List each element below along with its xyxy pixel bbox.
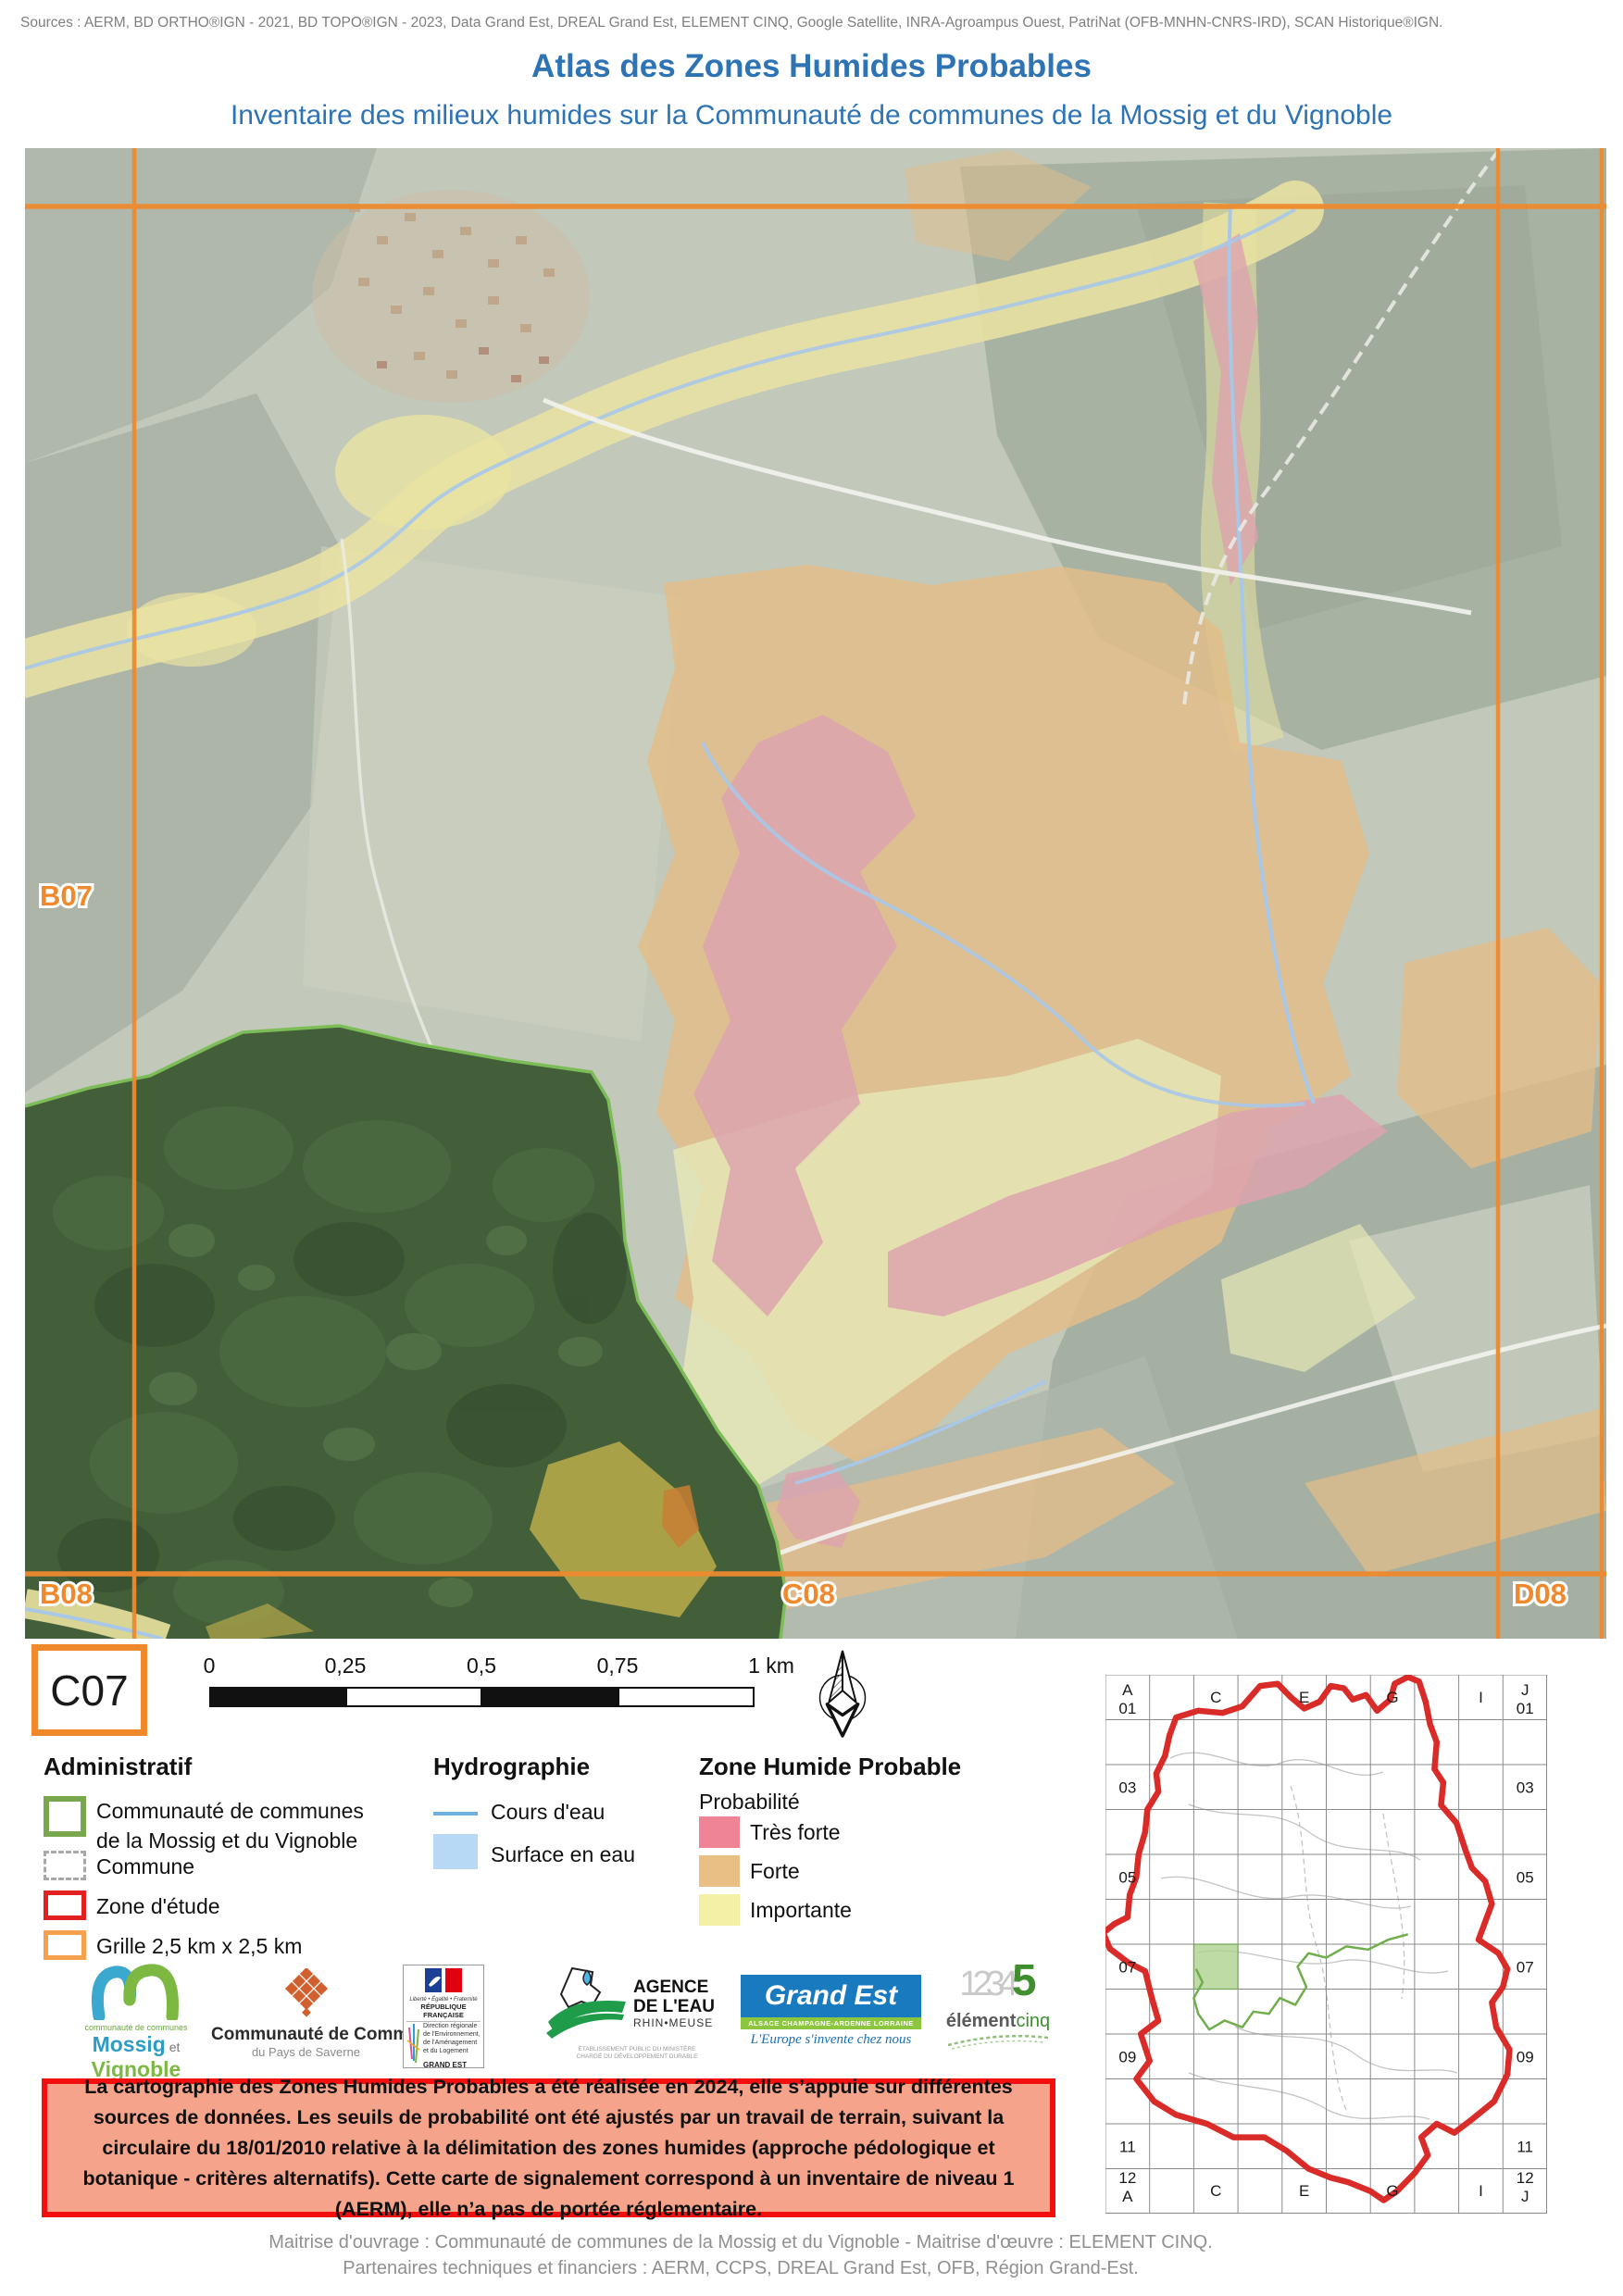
scale-tick-1km: 1 km <box>748 1653 794 1678</box>
north-arrow-icon <box>807 1648 878 1739</box>
satellite-map-canvas: B07 B08 C08 D08 <box>25 148 1606 1639</box>
ov-col-g-top: G <box>1386 1689 1398 1706</box>
ov-row-09-left: 09 <box>1118 2048 1136 2065</box>
ov-col-c-top: C <box>1210 1689 1221 1706</box>
logo-agence-eau: AGENCE DE L'EAU RHIN•MEUSE ÉTABLISSEMENT… <box>544 1965 730 2061</box>
element5-name2: cinq <box>1016 2011 1050 2031</box>
saverne-diamonds-icon <box>282 1968 331 2020</box>
france-flag-icon <box>425 1968 462 1992</box>
legend-hydro-title: Hydrographie <box>433 1753 590 1781</box>
element5-five: 5 <box>1012 1956 1037 2005</box>
legend-cc-label-1: Communauté de communes <box>96 1799 364 1824</box>
dreal-lower: Direction régionale de l'Environnement, … <box>406 2021 481 2069</box>
overview-current-cell <box>1193 1944 1238 1990</box>
legend-cc-swatch <box>44 1796 86 1837</box>
grid-label-d08: D08 <box>1514 1578 1567 1610</box>
ov-col-e-bottom: E <box>1299 2182 1309 2200</box>
ov-row-05-right: 05 <box>1517 1868 1534 1886</box>
notice-text: La cartographie des Zones Humides Probab… <box>68 2072 1030 2225</box>
overview-canvas: A 01 J 01 12 A 12 J C E G I C E G I 03 0… <box>1105 1675 1547 2214</box>
logo-dreal: Liberté • Égalité • Fraternité RÉPUBLIQU… <box>403 1965 484 2068</box>
saverne-line1: Communauté de Communes <box>211 2025 401 2045</box>
ov-corner-br-2: J <box>1521 2188 1529 2205</box>
current-cell-label: C07 <box>50 1666 128 1716</box>
ov-row-03-left: 03 <box>1118 1778 1136 1796</box>
legend-tres-forte-swatch <box>699 1816 740 1848</box>
footer-line2: Partenaires techniques et financiers : A… <box>69 2255 1412 2281</box>
scale-seg-3 <box>481 1687 618 1707</box>
dreal-bars-icon <box>406 2022 421 2065</box>
ov-corner-bl-2: A <box>1122 2188 1133 2205</box>
dreal-republique: RÉPUBLIQUE FRANÇAISE <box>404 2003 483 2019</box>
agence-l1: AGENCE <box>633 1978 715 1997</box>
agence-eau-icon <box>544 1965 630 2042</box>
logo-grand-est: Grand Est ALSACE CHAMPAGNE-ARDENNE LORRA… <box>741 1975 921 2048</box>
ov-corner-tl-1: A <box>1122 1681 1133 1699</box>
grandest-strip: ALSACE CHAMPAGNE-ARDENNE LORRAINE <box>748 2019 914 2028</box>
grid-label-b08: B08 <box>40 1578 93 1610</box>
ov-col-i-top: I <box>1479 1689 1483 1706</box>
legend-grille-label: Grille 2,5 km x 2,5 km <box>96 1934 302 1959</box>
legend-forte-label: Forte <box>750 1859 800 1884</box>
ov-row-05-left: 05 <box>1118 1868 1136 1886</box>
logo-saverne: Communauté de Communes du Pays de Savern… <box>211 1968 401 2059</box>
agence-sub1: ÉTABLISSEMENT PUBLIC DU MINISTÈRE <box>579 2046 696 2053</box>
scale-seg-1 <box>209 1687 346 1707</box>
page-title: Atlas des Zones Humides Probables <box>0 48 1623 85</box>
legend-probabilite-label: Probabilité <box>699 1790 800 1815</box>
main-map: B07 B08 C08 D08 <box>25 148 1606 1639</box>
legend-zone-etude-label: Zone d'étude <box>96 1894 220 1919</box>
scale-tick-05: 0,5 <box>467 1653 496 1678</box>
footer: Maitrise d'ouvrage : Communauté de commu… <box>69 2229 1412 2281</box>
ov-corner-tr-2: 01 <box>1517 1700 1534 1717</box>
legend-surface-swatch <box>433 1834 478 1869</box>
legend-zhp-title: Zone Humide Probable <box>699 1753 961 1781</box>
legend-grille-swatch <box>44 1930 86 1960</box>
legend-importante-swatch <box>699 1894 740 1926</box>
legend-surface-label: Surface en eau <box>491 1842 635 1867</box>
scale-tick-025: 0,25 <box>325 1653 367 1678</box>
mossig-name1: Mossig <box>93 2032 166 2056</box>
current-cell-box: C07 <box>31 1644 147 1736</box>
element5-digits: 1234 <box>959 1965 1012 2003</box>
ov-row-09-right: 09 <box>1517 2048 1534 2065</box>
ov-col-i-bottom: I <box>1479 2182 1483 2200</box>
overview-map: A 01 J 01 12 A 12 J C E G I C E G I 03 0… <box>1105 1675 1547 2218</box>
village-texture <box>312 190 590 403</box>
legend-admin-title: Administratif <box>44 1753 192 1781</box>
notice-box: La cartographie des Zones Humides Probab… <box>42 2078 1055 2217</box>
grandest-tagline: L'Europe s'invente chez nous <box>741 2032 921 2048</box>
agence-l3: RHIN•MEUSE <box>633 2016 715 2029</box>
legend-cours-label: Cours d'eau <box>491 1800 605 1825</box>
legend-forte-swatch <box>699 1855 740 1887</box>
legend-cours-swatch <box>433 1812 478 1816</box>
dreal-region: GRAND EST <box>423 2061 481 2069</box>
scale-seg-2 <box>345 1687 482 1707</box>
saverne-line2: du Pays de Saverne <box>211 2045 401 2059</box>
ov-col-g-bottom: G <box>1386 2182 1398 2200</box>
ov-col-e-top: E <box>1299 1689 1309 1706</box>
legend-zone-etude-swatch <box>44 1890 86 1920</box>
mossig-small-caption: communauté de communes <box>54 2023 218 2032</box>
agence-l2: DE L'EAU <box>633 1997 715 2016</box>
sources-line: Sources : AERM, BD ORTHO®IGN - 2021, BD … <box>20 15 1608 31</box>
north-arrow <box>807 1648 878 1743</box>
ov-corner-br-1: 12 <box>1517 2169 1534 2187</box>
scale-bar: 0 0,25 0,5 0,75 1 km <box>209 1653 820 1718</box>
dreal-dir4: et du Logement <box>423 2048 468 2054</box>
logo-element-cinq: 12345 élémentcinq <box>933 1961 1063 2055</box>
scale-seg-4 <box>618 1687 755 1707</box>
grandest-name: Grand Est <box>765 1980 897 2012</box>
legend-cc-label-2: de la Mossig et du Vignoble <box>96 1828 357 1853</box>
ov-col-c-bottom: C <box>1210 2182 1221 2200</box>
legend-importante-label: Importante <box>750 1898 852 1923</box>
dreal-dir1: Direction régionale <box>423 2023 477 2029</box>
element5-swoosh-icon <box>943 2030 1054 2051</box>
dreal-dir3: de l'Aménagement <box>423 2040 477 2046</box>
ov-row-11-left: 11 <box>1119 2138 1136 2155</box>
ov-corner-tr-1: J <box>1521 1681 1529 1699</box>
ov-row-07-left: 07 <box>1118 1958 1136 1976</box>
legend-commune-label: Commune <box>96 1854 194 1879</box>
scale-tick-075: 0,75 <box>597 1653 639 1678</box>
ov-corner-tl-2: 01 <box>1118 1700 1136 1717</box>
ov-row-11-right: 11 <box>1517 2138 1533 2155</box>
footer-line1: Maitrise d'ouvrage : Communauté de commu… <box>69 2229 1412 2255</box>
grid-label-c08: C08 <box>782 1578 835 1610</box>
dreal-dir2: de l'Environnement, <box>423 2031 481 2038</box>
legend-commune-swatch <box>44 1851 86 1880</box>
grid-label-b07: B07 <box>40 880 93 912</box>
page-subtitle: Inventaire des milieux humides sur la Co… <box>0 100 1623 131</box>
legend-tres-forte-label: Très forte <box>750 1820 841 1845</box>
ov-row-07-right: 07 <box>1517 1958 1534 1976</box>
scale-tick-0: 0 <box>204 1653 216 1678</box>
element5-name1: élément <box>946 2011 1017 2031</box>
mossig-m-icon <box>85 1963 187 2020</box>
ov-row-03-right: 03 <box>1517 1778 1534 1796</box>
mossig-et: et <box>166 2040 181 2054</box>
agence-sub2: CHARGÉ DU DÉVELOPPEMENT DURABLE <box>577 2053 698 2060</box>
ov-corner-bl-1: 12 <box>1118 2169 1136 2187</box>
